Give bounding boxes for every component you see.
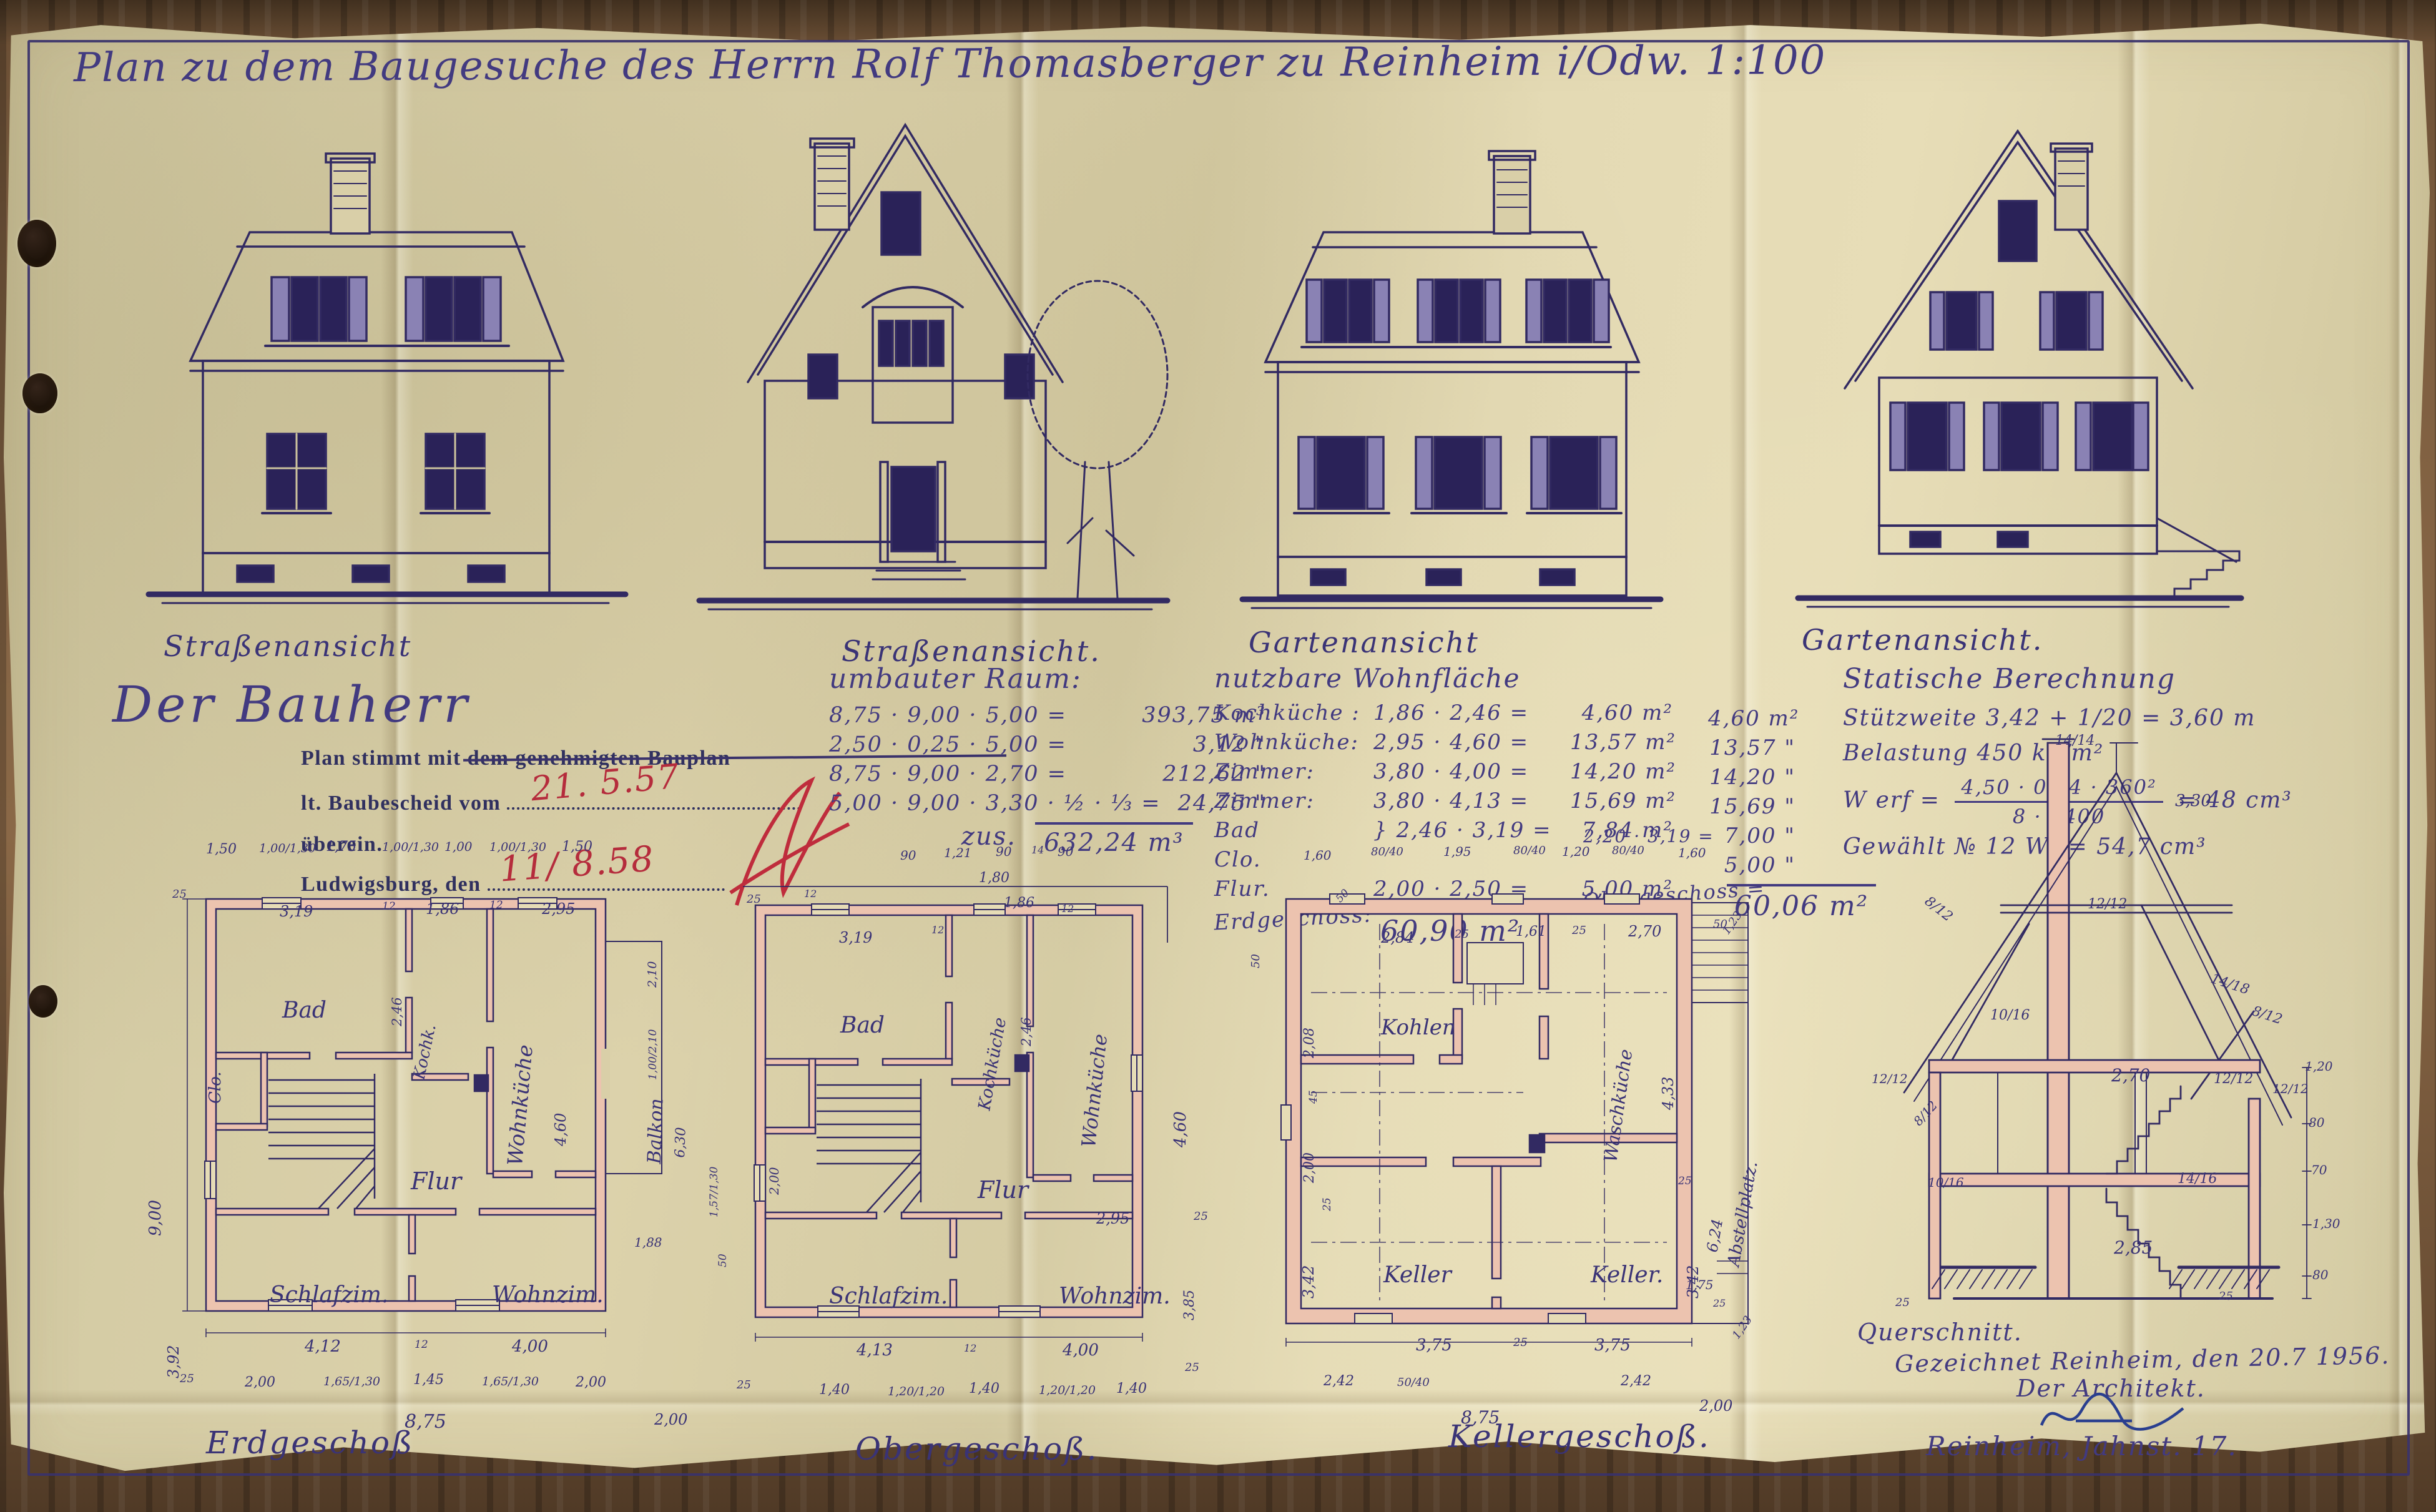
erdgeschoss-drawing <box>169 862 693 1355</box>
plan-annotation: 12/12 <box>2088 896 2127 912</box>
footer-address-line: Reinheim, Jahnst. 17. <box>1926 1431 2237 1461</box>
plan-annotation: 3,19 <box>839 929 872 946</box>
plan-annotation: 3,85 <box>1182 1290 1197 1320</box>
plan-annotation: 1,30 <box>2312 1216 2340 1231</box>
plan-annotation: 12 <box>489 899 503 911</box>
cross-section: 14/143,308/1212/1214/188/1212/128/1210/1… <box>1835 712 2335 1336</box>
plan-annotation: 4,13 <box>857 1341 893 1360</box>
plan-annotation: 25 <box>1194 1210 1208 1223</box>
plan-annotation: 3,75 <box>1416 1336 1452 1355</box>
plan-annotation: 25 <box>172 888 187 901</box>
elevation-garden-view-2-drawing <box>1792 87 2247 631</box>
plan-annotation: 2,08 <box>1302 1028 1317 1058</box>
plan-annotation: Kohlen <box>1381 1015 1456 1040</box>
plan-annotation: 12 <box>382 900 396 913</box>
plan-annotation: 1,20/1,20 <box>1039 1383 1096 1397</box>
plan-annotation: 4,60 <box>1171 1111 1190 1147</box>
plan-annotation: 25 <box>737 1378 751 1392</box>
volume-calc-row: 8,75 · 9,00 · 2,70 = 212,62 " <box>829 760 1266 789</box>
plan-annotation: 80/40 <box>1612 844 1644 857</box>
living-area-og-row: 14,20 " <box>1583 763 1876 792</box>
plan-annotation: 1,95 <box>1443 844 1471 859</box>
plan-annotation: 25 <box>1895 1296 1910 1309</box>
plan-annotation: 14/14 <box>2055 733 2095 749</box>
plan-annotation: Schlafzim. <box>829 1284 948 1309</box>
plan-annotation: 45 <box>1307 1090 1320 1104</box>
plan-annotation: 2,70 <box>2111 1065 2150 1086</box>
volume-calc-title: umbauter Raum: <box>829 663 1266 695</box>
plan-annotation: 1,88 <box>634 1235 662 1250</box>
plan-annotation: 4,00 <box>1063 1341 1099 1360</box>
floor-plan-erdgeschoss: 1,501,00/1,301,751,00/1,301,001,00/1,301… <box>162 830 699 1461</box>
plan-annotation: 12/12 <box>1872 1071 1908 1086</box>
plan-annotation: 2,00 <box>767 1167 782 1195</box>
plan-annotation: 90 <box>996 844 1011 859</box>
plan-annotation: 50/40 <box>1397 1376 1430 1389</box>
plan-annotation: 25 <box>1513 1336 1528 1349</box>
plan-annotation: Keller. <box>1591 1262 1663 1288</box>
plan-annotation: 80 <box>2309 1115 2324 1130</box>
plan-annotation: 1,40 <box>969 1381 999 1397</box>
plan-annotation: 2,00 <box>245 1375 275 1390</box>
volume-calc-rows: 8,75 · 9,00 · 5,00 = 393,75 m³ 2,50 · 0,… <box>829 701 1266 818</box>
plan-annotation: 1,86 <box>1004 895 1034 911</box>
plan-annotation: 25 <box>180 1372 194 1385</box>
plan-annotation: 1,65/1,30 <box>482 1375 539 1388</box>
plan-annotation: 14 <box>1031 844 1044 856</box>
plan-annotation: Flur <box>411 1167 461 1195</box>
plan-annotation: 25 <box>1185 1361 1199 1374</box>
bauherr-heading: Der Bauherr <box>112 675 471 734</box>
plan-annotation: 12 <box>1061 903 1074 915</box>
obergeschoss-label: Obergeschoß. <box>855 1431 1098 1467</box>
plan-annotation: Clo. <box>206 1071 225 1104</box>
plan-annotation: 4,33 <box>1659 1077 1677 1110</box>
plan-annotation: 25 <box>1572 924 1586 937</box>
plan-annotation: 50 <box>1249 954 1262 968</box>
floor-plan-kellergeschoss: 1,6080/401,9580/401,2080/401,6050502,842… <box>1249 837 1773 1461</box>
volume-calculation-block: umbauter Raum: 8,75 · 9,00 · 5,00 = 393,… <box>829 663 1266 857</box>
plan-annotation: 2,46 <box>1019 1017 1034 1046</box>
plan-annotation: 70 <box>2311 1162 2327 1177</box>
plan-annotation: 1,00 <box>444 839 473 854</box>
elevation-label-street-1: Straßenansicht <box>164 629 412 663</box>
plan-annotation: 12 <box>804 888 817 900</box>
volume-calc-row: 8,75 · 9,00 · 5,00 = 393,75 m³ <box>829 701 1266 730</box>
punch-hole <box>22 373 57 413</box>
plan-annotation: 25 <box>2219 1290 2233 1303</box>
elevation-garden-view-1-drawing <box>1239 100 1664 624</box>
plan-annotation: 1,45 <box>413 1372 444 1388</box>
plan-annotation: 80 <box>2312 1267 2328 1282</box>
plan-annotation: 25 <box>1678 1175 1692 1187</box>
plan-annotation: 6,30 <box>672 1127 689 1158</box>
plan-annotation: 2,95 <box>1096 1210 1129 1227</box>
plan-annotation: 14/16 <box>2178 1171 2217 1187</box>
plan-annotation: 80/40 <box>1513 844 1546 857</box>
plan-annotation: 1,21 <box>944 845 972 860</box>
plan-annotation: 25 <box>1321 1197 1333 1211</box>
plan-annotation: 3,30 <box>2175 792 2211 810</box>
plan-annotation: 25 <box>1713 1297 1726 1309</box>
plan-annotation: 10/16 <box>1990 1008 2030 1023</box>
plan-annotation: 1,80 <box>979 870 1009 886</box>
plan-annotation: Schlafzim. <box>270 1282 388 1308</box>
plan-annotation: 2,00 <box>1699 1397 1732 1415</box>
plan-annotation: 12/12 <box>2272 1081 2309 1096</box>
plan-annotation: 1,00/1,30 <box>489 840 546 854</box>
punch-hole <box>29 985 57 1018</box>
plan-annotation: 1,61 <box>1516 924 1546 940</box>
querschnitt-drawing <box>1842 718 2329 1330</box>
plan-annotation: 2,00 <box>654 1411 687 1428</box>
plan-annotation: 25 <box>1455 928 1469 941</box>
volume-calc-row: 5,00 · 9,00 · 3,30 · ½ · ⅓ = 24,75 " <box>829 789 1266 818</box>
scanned-blueprint-page: Plan zu dem Baugesuche des Herrn Rolf Th… <box>0 0 2436 1512</box>
plan-annotation: 10/16 <box>1928 1175 1964 1190</box>
plan-annotation: 3,42 <box>1300 1265 1317 1298</box>
plan-annotation: 2,10 <box>646 961 659 988</box>
plan-annotation: 12 <box>931 924 944 936</box>
plan-annotation: Balkon <box>644 1098 668 1164</box>
plan-annotation: 2,46 <box>390 997 405 1026</box>
plan-annotation: 1,50 <box>206 842 237 857</box>
plan-annotation: 1,75 <box>326 839 356 855</box>
elevation-street-view-1-drawing <box>144 94 631 624</box>
plan-annotation: 1,75 <box>1686 1277 1714 1292</box>
plan-annotation: 2,85 <box>2114 1237 2153 1258</box>
living-area-og-row: 13,57 " <box>1583 734 1876 763</box>
punch-hole <box>17 220 56 267</box>
plan-annotation: 1,60 <box>1678 845 1706 860</box>
plan-annotation: Bad <box>840 1013 885 1038</box>
plan-annotation: 3,19 <box>280 903 313 920</box>
elevation-street-view-2-drawing <box>693 81 1174 631</box>
plan-annotation: Bad <box>282 998 327 1023</box>
plan-annotation: 1,50 <box>562 839 592 855</box>
plan-annotation: Flur <box>978 1176 1028 1204</box>
plan-annotation: 2,00 <box>1302 1152 1317 1183</box>
elevation-label-garden-2: Gartenansicht. <box>1802 623 2043 657</box>
plan-annotation: 80/40 <box>1371 845 1403 858</box>
plan-annotation: 50 <box>717 1254 729 1267</box>
plan-annotation: 1,40 <box>819 1382 850 1398</box>
elevation-label-garden-1: Gartenansicht <box>1249 626 1480 659</box>
plan-annotation: 3,75 <box>1594 1336 1631 1355</box>
plan-annotation: 2,70 <box>1628 923 1661 940</box>
erdgeschoss-label: Erdgeschoß <box>206 1425 414 1461</box>
plan-annotation: 1,00/1,30 <box>259 842 316 855</box>
plan-annotation: 12/12 <box>2214 1071 2253 1087</box>
plan-annotation: Keller <box>1383 1262 1451 1288</box>
plan-annotation: 1,00/1,30 <box>382 840 439 854</box>
plan-annotation: 25 <box>747 893 761 906</box>
plan-annotation: 2,00 <box>576 1375 606 1390</box>
living-area-og-row: 15,69 " <box>1583 792 1876 822</box>
plan-annotation: 4,00 <box>512 1337 548 1356</box>
plan-annotation: 1,40 <box>1116 1381 1147 1397</box>
living-area-og-row: 4,60 m² <box>1583 704 1876 734</box>
plan-annotation: 9,00 <box>146 1200 165 1236</box>
floor-plan-obergeschoss: 901,219014901,8012253,19121,8612BadKochk… <box>712 830 1224 1461</box>
living-area-title: nutzbare Wohnfläche <box>1214 663 1673 694</box>
plan-annotation: 4,12 <box>305 1337 341 1356</box>
plan-annotation: 90 <box>900 848 916 863</box>
volume-calc-row: 2,50 · 0,25 · 5,00 = 3,12 " <box>829 730 1266 760</box>
plan-annotation: Wohnzim. <box>1059 1284 1171 1309</box>
plan-annotation: 2,42 <box>1324 1373 1354 1389</box>
plan-annotation: 1,86 <box>426 900 459 918</box>
plan-annotation: 1,20/1,20 <box>888 1385 945 1398</box>
plan-annotation: 1,00/2,10 <box>647 1029 659 1080</box>
querschnitt-caption: Querschnitt. <box>1857 1318 2023 1346</box>
plan-annotation: 1,20 <box>2305 1059 2333 1074</box>
plan-annotation: 12 <box>415 1338 428 1351</box>
kellergeschoss-label: Kellergeschoß. <box>1448 1418 1711 1455</box>
structural-calc-title: Statische Berechnung <box>1843 663 2292 695</box>
plan-annotation: 2,95 <box>542 900 575 918</box>
plan-annotation: 12 <box>964 1342 976 1354</box>
plan-annotation: 2,42 <box>1621 1373 1651 1389</box>
plan-annotation: 90 <box>1058 844 1073 859</box>
plan-annotation: 1,60 <box>1304 848 1332 863</box>
plan-annotation: 1,57/1,30 <box>708 1167 720 1217</box>
plan-annotation: 2,84 <box>1381 929 1414 946</box>
plan-annotation: Wohnzim. <box>492 1282 604 1308</box>
plan-annotation: 1,65/1,30 <box>323 1375 380 1388</box>
plan-annotation: 1,20 <box>1562 844 1590 859</box>
plan-annotation: 4,60 <box>552 1113 569 1146</box>
